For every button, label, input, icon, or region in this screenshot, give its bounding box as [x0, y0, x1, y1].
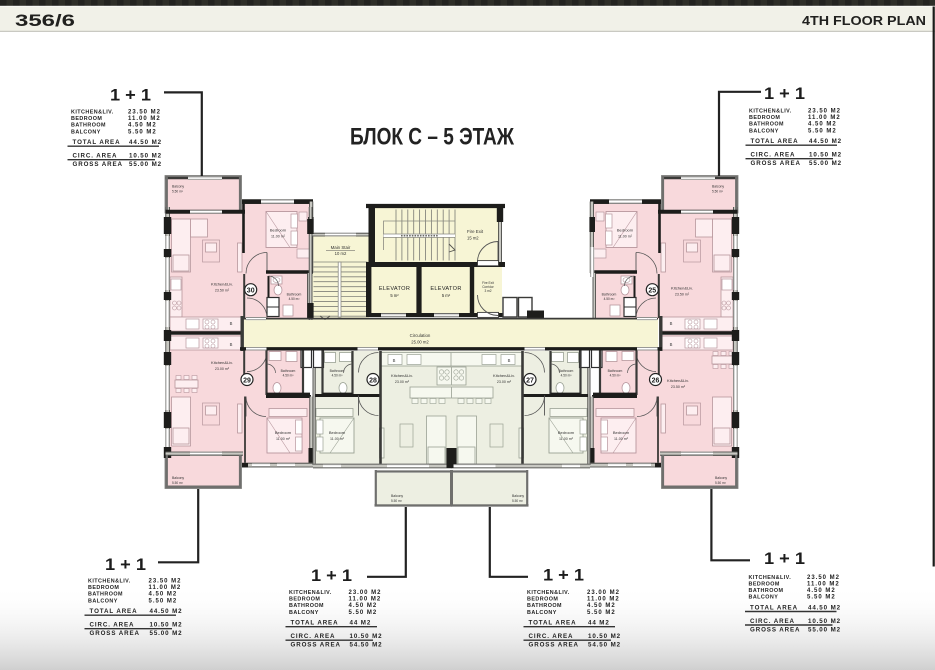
svg-text:4TH FLOOR PLAN: 4TH FLOOR PLAN	[802, 14, 926, 28]
svg-text:11.00 m²: 11.00 m²	[559, 437, 574, 441]
svg-text:TOTAL AREA: TOTAL AREA	[751, 138, 799, 145]
svg-text:B: B	[230, 342, 233, 347]
svg-text:GROSS AREA: GROSS AREA	[751, 160, 801, 167]
svg-text:GROSS AREA: GROSS AREA	[529, 642, 579, 649]
svg-text:26: 26	[652, 377, 660, 384]
svg-text:5.50 M2: 5.50 M2	[128, 129, 157, 135]
svg-text:5 m²: 5 m²	[442, 293, 451, 298]
svg-text:Bedroom: Bedroom	[617, 228, 634, 233]
svg-text:1 + 1: 1 + 1	[110, 86, 151, 105]
svg-text:Balcony: Balcony	[172, 185, 184, 189]
svg-text:10 m2: 10 m2	[335, 251, 347, 256]
svg-text:11.00 m²: 11.00 m²	[276, 437, 291, 441]
svg-text:5.50 M2: 5.50 M2	[587, 610, 616, 616]
svg-text:23.50 M2: 23.50 M2	[128, 110, 161, 116]
svg-text:Bedroom: Bedroom	[270, 228, 287, 233]
svg-text:55.00 M2: 55.00 M2	[150, 630, 183, 637]
svg-text:BEDROOM: BEDROOM	[749, 115, 780, 121]
svg-text:23.50 M2: 23.50 M2	[807, 575, 840, 581]
svg-text:BEDROOM: BEDROOM	[527, 597, 558, 603]
svg-text:Bathroom: Bathroom	[287, 293, 302, 297]
svg-text:4.50 M2: 4.50 M2	[808, 122, 837, 128]
svg-text:44.50 M2: 44.50 M2	[808, 604, 841, 611]
svg-text:4.50 m²: 4.50 m²	[561, 374, 572, 378]
svg-text:KITCHEN&LIV.: KITCHEN&LIV.	[749, 575, 792, 581]
svg-text:Balcony: Balcony	[172, 476, 184, 480]
svg-text:1 + 1: 1 + 1	[543, 566, 584, 585]
svg-text:11.00 M2: 11.00 M2	[149, 585, 182, 591]
svg-text:1 + 1: 1 + 1	[764, 84, 805, 103]
svg-text:TOTAL AREA: TOTAL AREA	[529, 620, 577, 627]
svg-text:GROSS AREA: GROSS AREA	[291, 642, 341, 649]
svg-text:Kitchen&Liv.: Kitchen&Liv.	[667, 378, 689, 383]
svg-text:23.00 M2: 23.00 M2	[587, 590, 620, 596]
svg-text:5.50 m²: 5.50 m²	[712, 190, 723, 194]
svg-text:BALCONY: BALCONY	[71, 129, 101, 135]
svg-text:10.50 M2: 10.50 M2	[809, 152, 842, 159]
svg-text:23.00 m²: 23.00 m²	[215, 367, 230, 371]
svg-text:B: B	[508, 358, 511, 363]
svg-text:CIRC. AREA: CIRC. AREA	[291, 633, 336, 640]
svg-text:5.50 m²: 5.50 m²	[512, 499, 523, 503]
svg-text:CIRC. AREA: CIRC. AREA	[751, 152, 796, 159]
svg-text:4.50 m²: 4.50 m²	[604, 297, 615, 301]
svg-text:BALCONY: BALCONY	[749, 128, 779, 134]
svg-text:44 M2: 44 M2	[350, 620, 372, 627]
svg-text:B: B	[670, 342, 673, 347]
svg-text:4.50 M2: 4.50 M2	[587, 603, 616, 609]
svg-text:KITCHEN&LIV.: KITCHEN&LIV.	[749, 109, 792, 115]
svg-text:БЛОК С – 5 ЭТАЖ: БЛОК С – 5 ЭТАЖ	[350, 124, 514, 151]
svg-text:55.00 M2: 55.00 M2	[129, 161, 162, 168]
svg-text:10.50 M2: 10.50 M2	[129, 153, 162, 160]
svg-text:5.50 m²: 5.50 m²	[715, 481, 726, 485]
svg-text:4.50 m²: 4.50 m²	[332, 374, 343, 378]
svg-text:11.00 M2: 11.00 M2	[587, 597, 620, 603]
svg-text:Kitchen&Liv.: Kitchen&Liv.	[211, 282, 233, 287]
svg-text:Bathroom: Bathroom	[608, 369, 623, 373]
svg-text:KITCHEN&LIV.: KITCHEN&LIV.	[527, 590, 570, 596]
svg-text:Bedroom: Bedroom	[275, 430, 292, 435]
svg-text:BATHROOM: BATHROOM	[71, 123, 106, 129]
svg-text:Balcony: Balcony	[391, 494, 403, 498]
svg-text:11.00 M2: 11.00 M2	[808, 115, 841, 121]
svg-text:CIRC. AREA: CIRC. AREA	[750, 618, 795, 625]
svg-text:15 m2: 15 m2	[467, 236, 479, 241]
svg-text:23.50 m²: 23.50 m²	[675, 293, 690, 297]
svg-text:Bedroom: Bedroom	[558, 430, 575, 435]
svg-text:23.50 M2: 23.50 M2	[808, 109, 841, 115]
svg-text:BATHROOM: BATHROOM	[749, 122, 784, 128]
svg-text:11.00 m²: 11.00 m²	[614, 437, 629, 441]
svg-text:4.50 M2: 4.50 M2	[128, 123, 157, 129]
svg-text:5.50 M2: 5.50 M2	[808, 128, 837, 134]
svg-text:55.00 M2: 55.00 M2	[808, 626, 841, 633]
svg-text:5 m²: 5 m²	[390, 293, 399, 298]
svg-text:4.50 m²: 4.50 m²	[610, 374, 621, 378]
svg-text:44.50 M2: 44.50 M2	[809, 138, 842, 145]
svg-text:23.00 m²: 23.00 m²	[395, 380, 410, 384]
svg-text:Balcony: Balcony	[712, 185, 724, 189]
svg-text:23.50 m²: 23.50 m²	[215, 289, 230, 293]
svg-text:44.50 M2: 44.50 M2	[150, 608, 183, 615]
svg-text:23.50 M2: 23.50 M2	[149, 579, 182, 585]
svg-text:10.50 M2: 10.50 M2	[588, 633, 621, 640]
svg-text:1 + 1: 1 + 1	[105, 555, 146, 574]
svg-text:CIRC. AREA: CIRC. AREA	[90, 622, 135, 629]
svg-text:29: 29	[243, 377, 251, 384]
svg-text:BEDROOM: BEDROOM	[88, 585, 119, 591]
svg-text:BEDROOM: BEDROOM	[71, 116, 102, 122]
svg-text:23.00 M2: 23.00 M2	[349, 590, 382, 596]
svg-text:GROSS AREA: GROSS AREA	[73, 161, 123, 168]
svg-text:3 m2: 3 m2	[484, 289, 491, 293]
svg-text:Kitchen&Liv.: Kitchen&Liv.	[391, 373, 413, 378]
svg-text:11.00 M2: 11.00 M2	[128, 116, 161, 122]
svg-text:356/6: 356/6	[15, 11, 75, 30]
svg-text:Bathroom: Bathroom	[559, 369, 574, 373]
svg-text:5.50 m²: 5.50 m²	[172, 481, 183, 485]
svg-text:Bathroom: Bathroom	[330, 369, 345, 373]
svg-text:54.50 M2: 54.50 M2	[350, 642, 383, 649]
svg-text:10.50 M2: 10.50 M2	[150, 622, 183, 629]
svg-text:4.50 M2: 4.50 M2	[349, 603, 378, 609]
svg-text:BATHROOM: BATHROOM	[527, 603, 562, 609]
svg-text:Bedroom: Bedroom	[329, 430, 346, 435]
svg-text:Fire Exit: Fire Exit	[467, 229, 484, 234]
svg-text:BALCONY: BALCONY	[527, 610, 557, 616]
svg-text:27: 27	[526, 377, 534, 384]
svg-text:44.50 M2: 44.50 M2	[129, 139, 162, 146]
svg-text:55.00 M2: 55.00 M2	[809, 160, 842, 167]
svg-text:54.50 M2: 54.50 M2	[588, 642, 621, 649]
svg-text:Kitchen&Liv.: Kitchen&Liv.	[493, 373, 515, 378]
svg-text:CIRC. AREA: CIRC. AREA	[73, 153, 118, 160]
svg-text:BATHROOM: BATHROOM	[88, 592, 123, 598]
svg-text:TOTAL AREA: TOTAL AREA	[73, 139, 121, 146]
svg-text:28: 28	[369, 377, 377, 384]
svg-text:BATHROOM: BATHROOM	[749, 588, 784, 594]
svg-text:CIRC. AREA: CIRC. AREA	[529, 633, 574, 640]
svg-text:Bathroom: Bathroom	[602, 293, 617, 297]
svg-text:KITCHEN&LIV.: KITCHEN&LIV.	[289, 590, 332, 596]
svg-text:44 M2: 44 M2	[588, 620, 610, 627]
svg-text:4.50 M2: 4.50 M2	[149, 592, 178, 598]
svg-text:23.00 m²: 23.00 m²	[497, 380, 512, 384]
svg-text:30: 30	[247, 288, 255, 295]
svg-text:11.00 M2: 11.00 M2	[807, 581, 840, 587]
svg-text:BEDROOM: BEDROOM	[749, 581, 780, 587]
svg-text:ELEVATOR: ELEVATOR	[379, 286, 410, 292]
svg-text:BALCONY: BALCONY	[88, 598, 118, 604]
svg-text:TOTAL AREA: TOTAL AREA	[90, 608, 138, 615]
svg-text:Circulation: Circulation	[410, 333, 431, 338]
svg-text:11.00 m²: 11.00 m²	[271, 235, 286, 239]
svg-text:5.50 m²: 5.50 m²	[172, 190, 183, 194]
svg-text:11.00 m²: 11.00 m²	[618, 235, 633, 239]
svg-text:KITCHEN&LIV.: KITCHEN&LIV.	[71, 110, 114, 116]
svg-text:TOTAL AREA: TOTAL AREA	[291, 620, 339, 627]
svg-text:ELEVATOR: ELEVATOR	[430, 286, 461, 292]
svg-text:Kitchen&Liv.: Kitchen&Liv.	[211, 360, 233, 365]
svg-text:KITCHEN&LIV.: KITCHEN&LIV.	[88, 579, 131, 585]
svg-text:4.50 m²: 4.50 m²	[283, 374, 294, 378]
svg-text:Balcony: Balcony	[715, 476, 727, 480]
svg-text:BATHROOM: BATHROOM	[289, 603, 324, 609]
svg-text:23.50 m²: 23.50 m²	[671, 385, 686, 389]
svg-text:Kitchen&Liv.: Kitchen&Liv.	[671, 286, 693, 291]
svg-text:4.50 m²: 4.50 m²	[289, 297, 300, 301]
svg-text:5.50 M2: 5.50 M2	[807, 595, 836, 601]
svg-text:4.50 M2: 4.50 M2	[807, 588, 836, 594]
svg-text:B: B	[393, 358, 396, 363]
svg-text:Main Stair: Main Stair	[331, 245, 351, 250]
svg-text:Balcony: Balcony	[512, 494, 524, 498]
svg-text:BEDROOM: BEDROOM	[289, 597, 320, 603]
svg-text:10.50 M2: 10.50 M2	[808, 618, 841, 625]
svg-text:B: B	[230, 321, 233, 326]
svg-text:BALCONY: BALCONY	[749, 595, 779, 601]
svg-text:10.50 M2: 10.50 M2	[350, 633, 383, 640]
svg-text:25: 25	[648, 288, 656, 295]
svg-text:B: B	[670, 321, 673, 326]
svg-text:5.50 M2: 5.50 M2	[349, 610, 378, 616]
svg-text:25.00 m2: 25.00 m2	[411, 340, 429, 345]
svg-text:11.00 m²: 11.00 m²	[330, 437, 345, 441]
svg-text:BALCONY: BALCONY	[289, 610, 319, 616]
svg-text:Bathroom: Bathroom	[281, 369, 296, 373]
svg-text:GROSS AREA: GROSS AREA	[750, 626, 800, 633]
svg-text:11.00 M2: 11.00 M2	[349, 597, 382, 603]
svg-text:1 + 1: 1 + 1	[764, 549, 805, 568]
svg-text:TOTAL AREA: TOTAL AREA	[750, 604, 798, 611]
svg-text:5.50 M2: 5.50 M2	[149, 598, 178, 604]
svg-text:5.50 m²: 5.50 m²	[391, 499, 402, 503]
svg-text:Bedroom: Bedroom	[613, 430, 630, 435]
svg-text:GROSS AREA: GROSS AREA	[90, 630, 140, 637]
svg-text:1 + 1: 1 + 1	[311, 566, 352, 585]
